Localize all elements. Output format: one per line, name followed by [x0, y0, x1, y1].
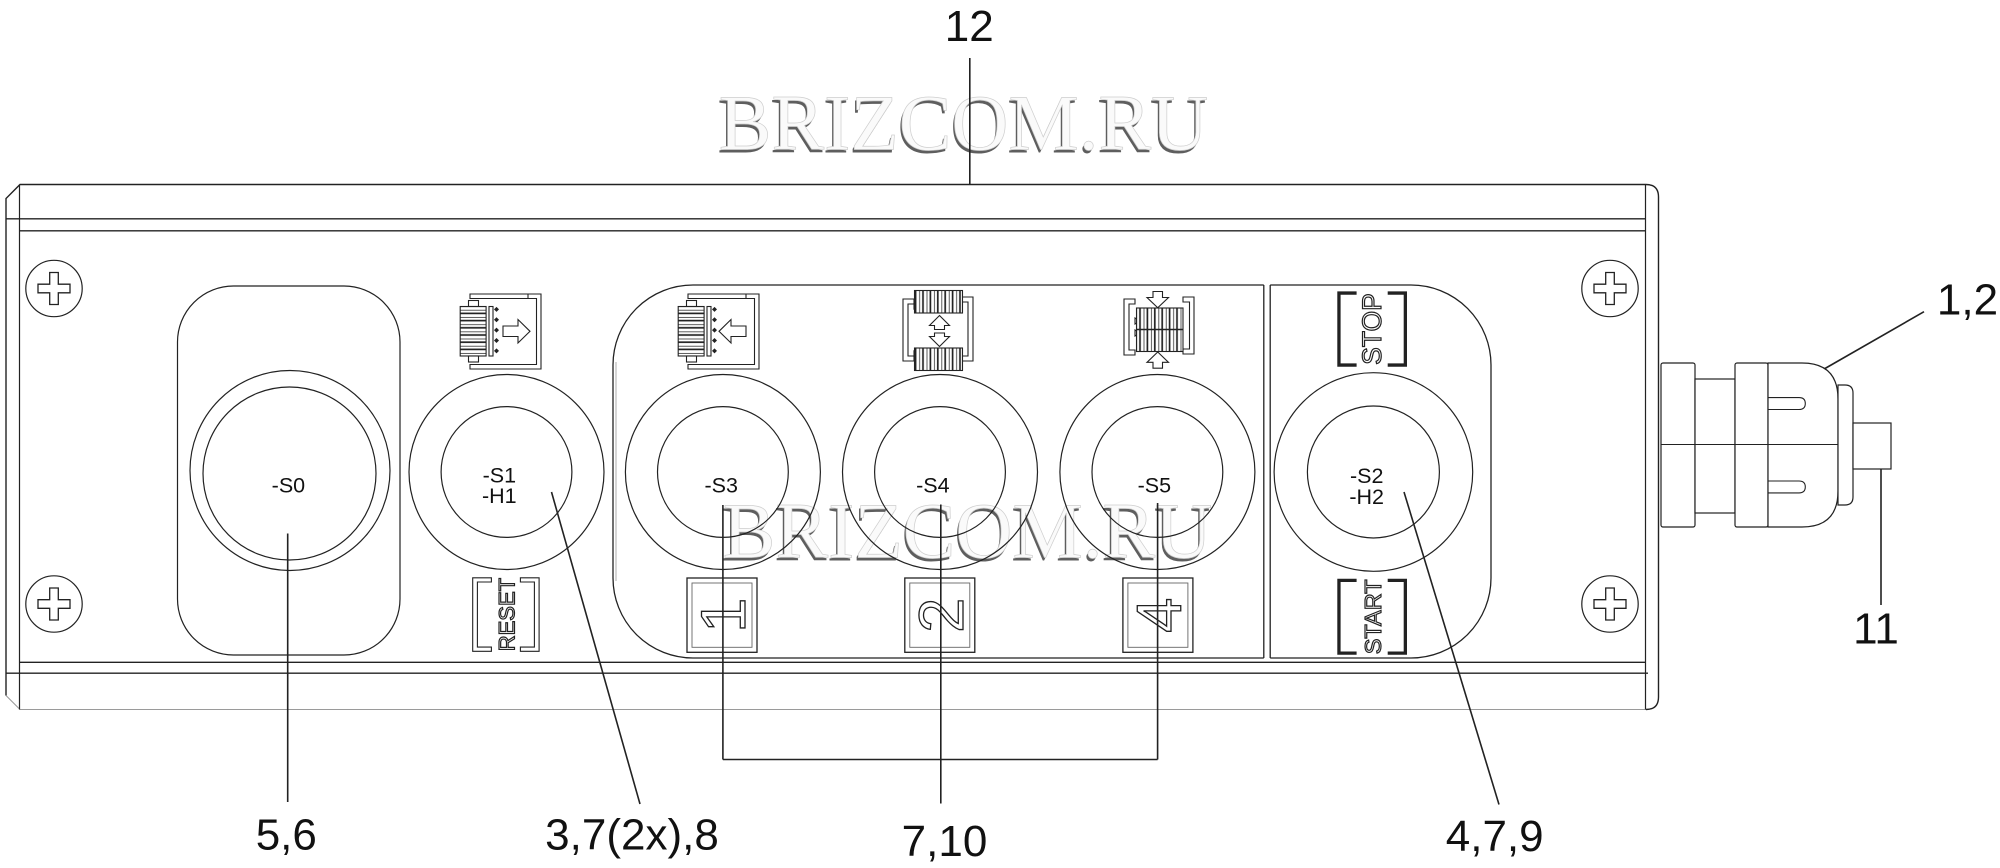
svg-text:-S5: -S5 [1138, 473, 1172, 497]
svg-text:7,10: 7,10 [902, 817, 988, 866]
svg-text:STOP: STOP [1357, 293, 1387, 365]
svg-text:BRIZCOM.RU: BRIZCOM.RU [723, 489, 1212, 576]
svg-text:2: 2 [907, 598, 977, 633]
svg-text:1,2: 1,2 [1937, 276, 1998, 325]
svg-text:3,7(2x),8: 3,7(2x),8 [545, 811, 719, 860]
svg-text:4,7,9: 4,7,9 [1446, 812, 1544, 861]
svg-text:11: 11 [1853, 604, 1899, 653]
svg-text:-S3: -S3 [704, 473, 738, 497]
svg-text:5,6: 5,6 [256, 811, 317, 860]
svg-text:-H2: -H2 [1349, 485, 1384, 509]
svg-text:BRIZCOM.RU: BRIZCOM.RU [719, 81, 1208, 168]
svg-text:RESET: RESET [494, 578, 519, 651]
svg-text:-S4: -S4 [916, 473, 950, 497]
svg-text:12: 12 [945, 2, 994, 51]
svg-text:4: 4 [1125, 598, 1195, 633]
svg-text:1: 1 [689, 598, 759, 633]
svg-text:-H1: -H1 [482, 484, 517, 508]
svg-text:-S0: -S0 [272, 474, 306, 498]
svg-text:START: START [1360, 579, 1386, 654]
